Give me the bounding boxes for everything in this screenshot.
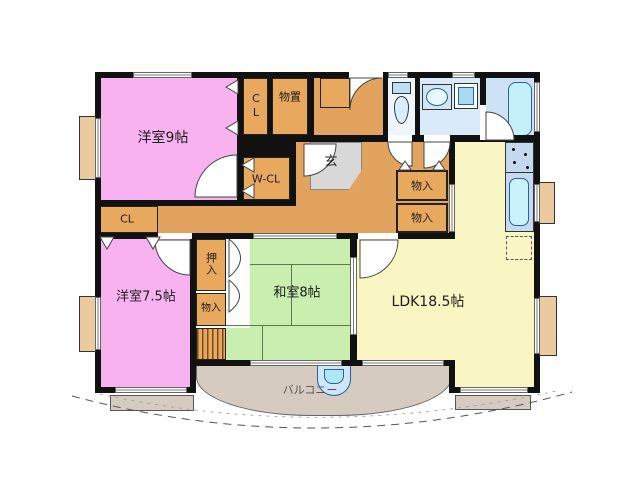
fusuma-sliding-door	[253, 233, 337, 239]
label-walk-in-closet: W-CL	[252, 174, 280, 185]
toilet-tank	[392, 82, 411, 94]
bay-window	[79, 296, 96, 352]
kitchen-sink-icon	[509, 178, 529, 226]
washing-machine-drum	[458, 87, 474, 105]
wall	[237, 200, 296, 206]
label-entrance: 玄	[324, 156, 337, 169]
wall-shaft	[237, 142, 296, 157]
door-gap	[480, 105, 486, 140]
room-label-ldk: LDK18.5帖	[392, 295, 465, 309]
staircase	[196, 328, 226, 360]
wall	[383, 72, 388, 142]
stove-burner-dot	[526, 166, 529, 169]
wall	[308, 72, 314, 142]
wall	[268, 78, 272, 135]
label-closet-left: CL	[120, 214, 134, 225]
front-door-gap	[349, 72, 383, 78]
label-balcony: バルコニー	[283, 385, 338, 396]
refrigerator-space	[506, 236, 532, 260]
shoe-cabinet-box	[320, 78, 350, 108]
kitchen-counter-divider	[505, 172, 534, 173]
stove-burner-dot	[513, 161, 516, 164]
bay-window	[539, 296, 557, 356]
wall	[237, 135, 314, 142]
room-western75-floor	[101, 239, 190, 387]
window-sliding	[362, 360, 444, 366]
floor-plan: 洋室9帖 洋室7.5帖 和室8帖 LDK18.5帖 玄 バルコニー CL 物置 …	[0, 0, 640, 480]
label-monoire-hall-upper: 物入	[411, 181, 433, 192]
window	[534, 82, 540, 132]
bathtub-icon	[508, 82, 532, 136]
wall	[305, 135, 540, 142]
window	[133, 72, 192, 78]
tatami-line	[226, 325, 350, 326]
window	[460, 387, 528, 393]
wall	[449, 360, 455, 393]
label-oshiire: 押入	[206, 252, 217, 276]
bay-window	[539, 182, 555, 224]
stove-burner-dot	[524, 153, 527, 156]
wall	[95, 200, 243, 206]
label-storeroom: 物置	[279, 92, 301, 103]
label-monoire-hall-lower: 物入	[411, 213, 433, 224]
wall	[190, 233, 196, 393]
window	[95, 118, 101, 178]
tatami-line	[250, 264, 350, 265]
door-gap	[358, 233, 398, 239]
room-label-japanese8: 和室8帖	[273, 287, 320, 300]
window-ledge	[110, 395, 194, 411]
door-gap	[158, 233, 192, 239]
door-gap	[388, 135, 412, 142]
room-label-western9: 洋室9帖	[138, 131, 189, 145]
window	[95, 297, 101, 350]
label-closet-top: CL	[251, 92, 262, 120]
label-monoire-column: 物入	[201, 304, 221, 314]
sliding-door	[449, 184, 455, 232]
vanity-basin	[426, 88, 448, 106]
stove-burner-dot	[512, 148, 515, 151]
window-ledge	[455, 395, 531, 410]
tatami-line	[262, 325, 263, 360]
bay-window	[79, 116, 96, 180]
window	[388, 72, 408, 78]
window	[534, 298, 540, 354]
door-gap	[424, 135, 450, 142]
sliding-door	[350, 257, 357, 335]
wall	[415, 72, 420, 142]
balcony-sink-basin	[324, 369, 344, 384]
window	[452, 72, 475, 78]
window	[534, 184, 540, 222]
wall	[290, 157, 296, 206]
storeroom-box	[272, 78, 308, 135]
room-label-western75: 洋室7.5帖	[116, 291, 176, 304]
window	[115, 387, 187, 393]
closet-door-alcove	[226, 239, 250, 328]
